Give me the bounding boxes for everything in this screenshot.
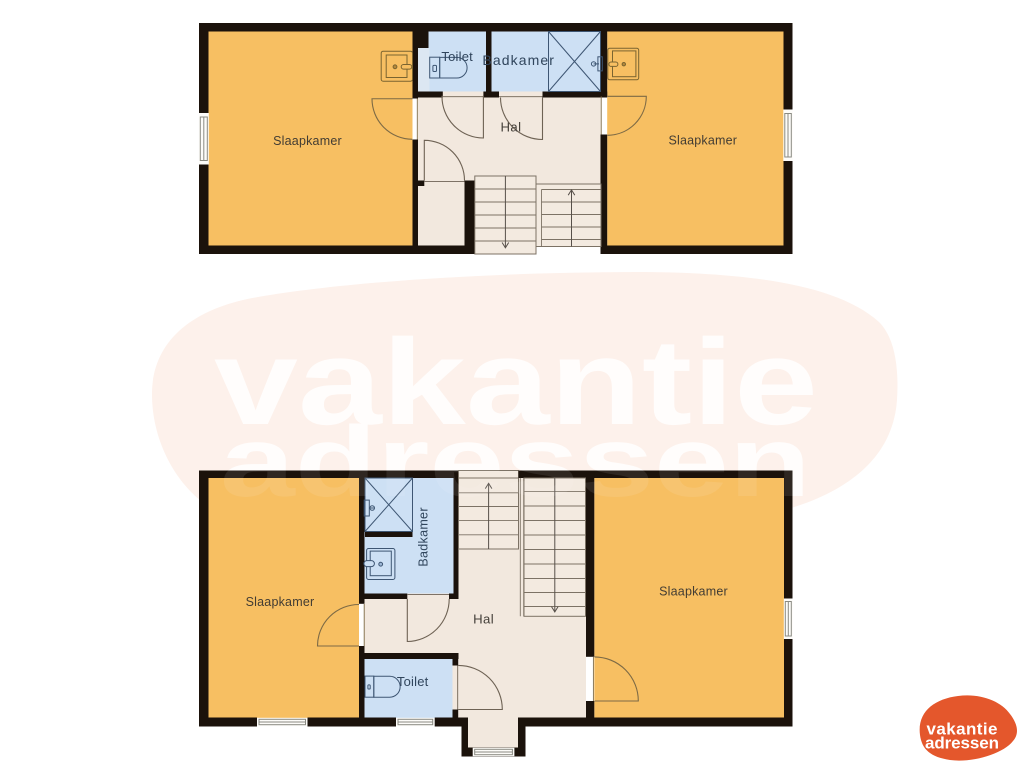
svg-text:Toilet: Toilet	[397, 674, 429, 689]
svg-text:Slaapkamer: Slaapkamer	[659, 585, 728, 599]
svg-text:Toilet: Toilet	[441, 49, 473, 64]
svg-text:Slaapkamer: Slaapkamer	[246, 595, 315, 609]
svg-text:Badkamer: Badkamer	[482, 52, 555, 68]
svg-text:Hal: Hal	[501, 120, 522, 135]
svg-text:adressen: adressen	[925, 734, 999, 753]
svg-text:Slaapkamer: Slaapkamer	[273, 134, 342, 148]
svg-text:Slaapkamer: Slaapkamer	[668, 134, 737, 148]
svg-text:adressen: adressen	[220, 406, 811, 518]
svg-text:Hal: Hal	[473, 611, 494, 626]
